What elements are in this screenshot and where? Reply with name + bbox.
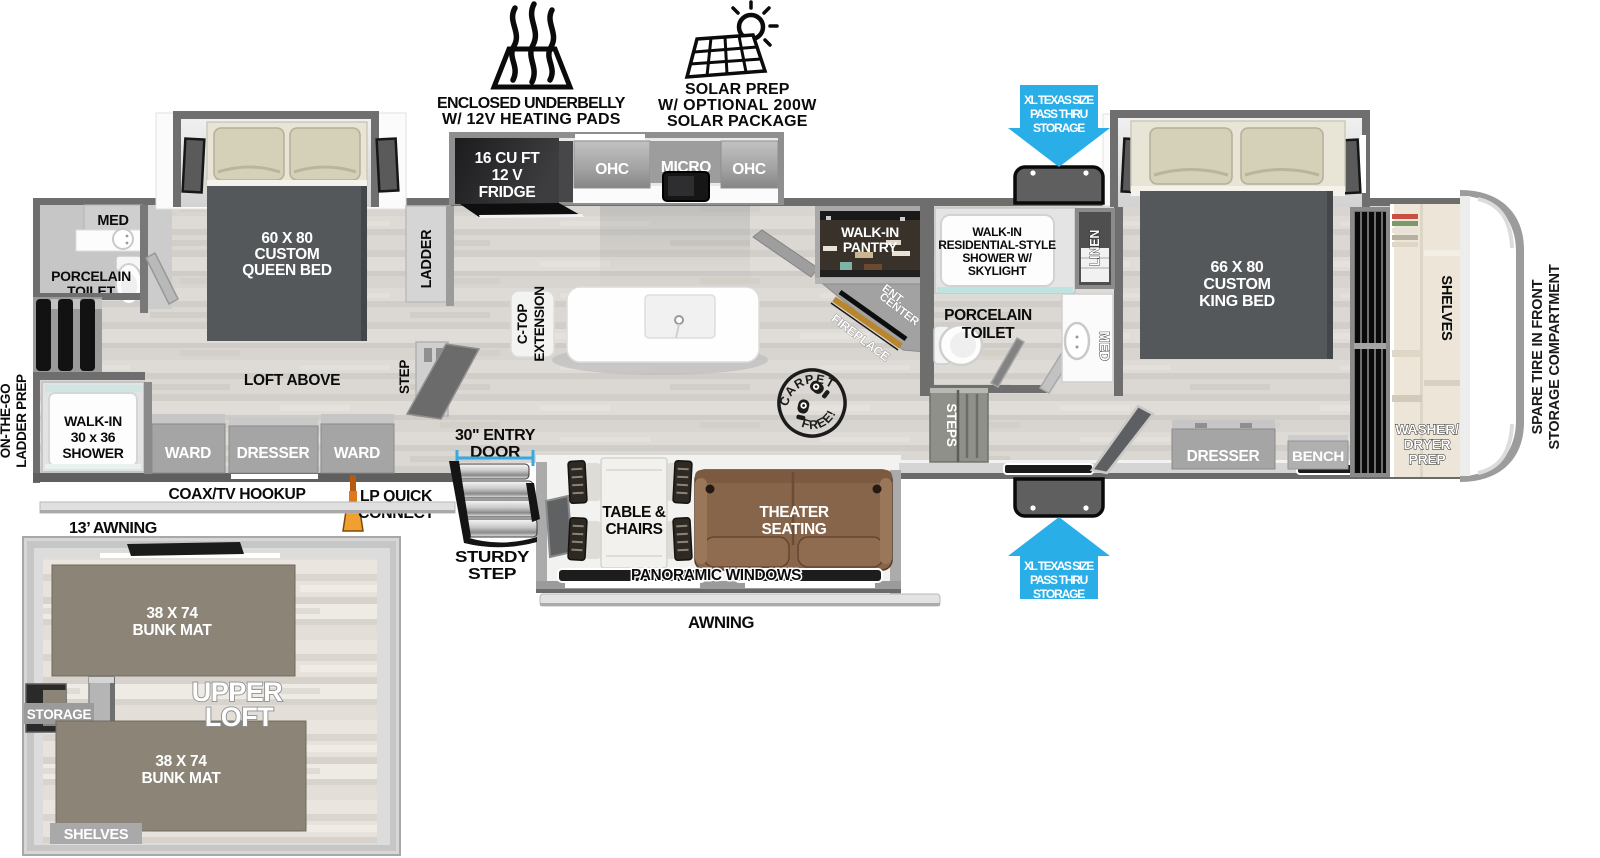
- svg-text:DRESSER: DRESSER: [1187, 448, 1260, 465]
- svg-text:XL TEXAS SIZE: XL TEXAS SIZE: [1024, 93, 1094, 107]
- svg-text:WALK-IN: WALK-IN: [841, 224, 899, 240]
- svg-text:LADDER: LADDER: [419, 229, 435, 288]
- svg-text:W/ OPTIONAL 200W: W/ OPTIONAL 200W: [658, 97, 817, 114]
- svg-text:SOLAR PACKAGE: SOLAR PACKAGE: [667, 113, 808, 130]
- svg-text:16 CU FT: 16 CU FT: [475, 150, 541, 167]
- svg-text:OHC: OHC: [595, 161, 629, 178]
- svg-text:STORAGE: STORAGE: [27, 707, 92, 722]
- svg-text:WARD: WARD: [334, 445, 380, 462]
- svg-text:LOFT: LOFT: [205, 702, 274, 732]
- svg-text:ENCLOSED UNDERBELLY: ENCLOSED UNDERBELLY: [437, 95, 626, 112]
- svg-text:W/ 12V HEATING PADS: W/ 12V HEATING PADS: [442, 111, 621, 128]
- svg-text:MED: MED: [1097, 331, 1112, 361]
- svg-text:DRYER: DRYER: [1404, 436, 1451, 452]
- svg-text:STORAGE: STORAGE: [1033, 587, 1085, 601]
- svg-text:SHOWER: SHOWER: [62, 445, 123, 461]
- svg-text:OHC: OHC: [732, 161, 766, 178]
- svg-text:TABLE &: TABLE &: [602, 504, 665, 521]
- svg-text:THEATER: THEATER: [759, 504, 828, 521]
- svg-text:MED: MED: [97, 213, 128, 229]
- svg-text:PANORAMIC WINDOWS: PANORAMIC WINDOWS: [631, 567, 802, 584]
- svg-text:PANTRY: PANTRY: [843, 239, 898, 255]
- svg-text:STORAGE: STORAGE: [1033, 121, 1085, 135]
- svg-text:AWNING: AWNING: [688, 614, 754, 632]
- svg-text:SEATING: SEATING: [762, 521, 827, 538]
- svg-text:LADDER PREP: LADDER PREP: [14, 374, 29, 468]
- svg-text:SHELVES: SHELVES: [64, 827, 129, 843]
- svg-text:30 x 36: 30 x 36: [71, 429, 116, 445]
- svg-text:PORCELAIN: PORCELAIN: [944, 307, 1032, 324]
- svg-text:PASS THRU: PASS THRU: [1030, 573, 1088, 587]
- svg-text:WALK-IN: WALK-IN: [64, 413, 122, 429]
- svg-text:WALK-IN: WALK-IN: [972, 225, 1021, 239]
- svg-text:QUEEN BED: QUEEN BED: [242, 262, 332, 279]
- svg-text:CUSTOM: CUSTOM: [1203, 276, 1270, 293]
- svg-text:PREP: PREP: [1409, 451, 1446, 467]
- svg-text:66 X 80: 66 X 80: [1210, 259, 1263, 276]
- svg-text:38 X 74: 38 X 74: [146, 605, 198, 622]
- svg-text:STEPS: STEPS: [944, 403, 959, 446]
- svg-text:XL TEXAS SIZE: XL TEXAS SIZE: [1024, 559, 1094, 573]
- svg-text:C-TOP: C-TOP: [515, 304, 530, 345]
- svg-text:COAX/TV HOOKUP: COAX/TV HOOKUP: [169, 486, 307, 503]
- svg-text:PASS THRU: PASS THRU: [1030, 107, 1088, 121]
- svg-text:LINEN: LINEN: [1088, 230, 1102, 267]
- svg-text:FRIDGE: FRIDGE: [479, 184, 536, 201]
- svg-text:WASHER/: WASHER/: [1395, 421, 1459, 437]
- svg-text:LOFT ABOVE: LOFT ABOVE: [244, 372, 340, 389]
- svg-text:STORAGE COMPARTMENT: STORAGE COMPARTMENT: [1547, 264, 1563, 449]
- svg-text:KING BED: KING BED: [1199, 293, 1275, 310]
- svg-text:12 V: 12 V: [492, 167, 524, 184]
- svg-text:ON-THE-GO: ON-THE-GO: [0, 384, 13, 459]
- svg-text:STURDY: STURDY: [455, 549, 530, 566]
- svg-text:RESIDENTIAL-STYLE: RESIDENTIAL-STYLE: [938, 238, 1056, 252]
- svg-text:60 X 80: 60 X 80: [261, 230, 312, 247]
- svg-text:30" ENTRY: 30" ENTRY: [455, 427, 536, 444]
- svg-text:TOILET: TOILET: [962, 325, 1015, 342]
- svg-text:BENCH: BENCH: [1292, 448, 1344, 464]
- svg-text:EXTENSION: EXTENSION: [532, 286, 547, 361]
- svg-text:SOLAR PREP: SOLAR PREP: [685, 81, 790, 98]
- svg-text:STEP: STEP: [468, 566, 517, 583]
- svg-text:13’ AWNING: 13’ AWNING: [69, 520, 157, 537]
- svg-text:SHELVES: SHELVES: [1438, 275, 1454, 341]
- svg-text:SKYLIGHT: SKYLIGHT: [968, 264, 1027, 278]
- svg-text:SPARE TIRE IN FRONT: SPARE TIRE IN FRONT: [1530, 279, 1546, 434]
- svg-text:SHOWER W/: SHOWER W/: [962, 251, 1032, 265]
- svg-text:WARD: WARD: [165, 445, 211, 462]
- svg-text:CHAIRS: CHAIRS: [605, 521, 662, 538]
- svg-text:38 X 74: 38 X 74: [155, 753, 207, 770]
- svg-text:DRESSER: DRESSER: [237, 445, 310, 462]
- svg-text:BUNK MAT: BUNK MAT: [132, 622, 212, 639]
- svg-text:CUSTOM: CUSTOM: [254, 246, 319, 263]
- svg-text:BUNK MAT: BUNK MAT: [141, 770, 221, 787]
- svg-text:STEP: STEP: [397, 360, 412, 394]
- svg-text:PORCELAIN: PORCELAIN: [51, 268, 131, 284]
